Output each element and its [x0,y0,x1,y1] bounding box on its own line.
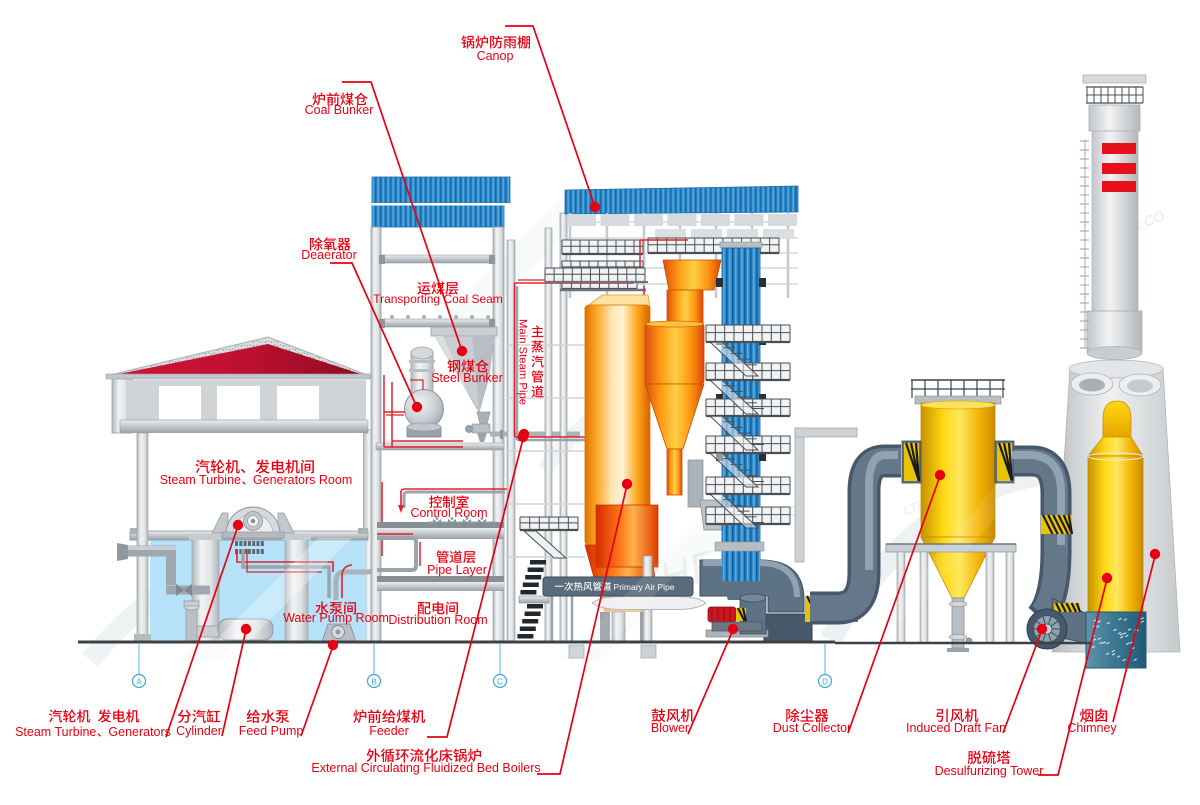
svg-text:Feeder: Feeder [369,724,409,738]
svg-text:Distribution Room: Distribution Room [388,613,487,627]
svg-text:Water Pump Room: Water Pump Room [283,611,389,625]
svg-text:Control Room: Control Room [410,506,487,520]
svg-text:D: D [822,678,828,687]
svg-text:Canop: Canop [477,49,514,63]
svg-text:Cylinder: Cylinder [176,724,222,738]
svg-text:External Circulating Fluidized: External Circulating Fluidized Bed Boile… [311,761,540,775]
svg-text:Feed Pump: Feed Pump [239,724,304,738]
svg-text:Deaerator: Deaerator [301,248,357,262]
svg-text:Induced Draft Fan: Induced Draft Fan [906,721,1006,735]
svg-text:Generators Room: Generators Room [253,473,352,487]
svg-text:Chimney: Chimney [1067,721,1117,735]
svg-text:Generators: Generators [108,725,171,739]
svg-text:Transporting Coal Seam: Transporting Coal Seam [373,292,503,306]
svg-text:Steel Bunker: Steel Bunker [431,371,503,385]
svg-text:Main Steam Pipe: Main Steam Pipe [517,319,529,405]
svg-text:B: B [371,678,376,687]
svg-text:Dust Collector: Dust Collector [773,721,852,735]
svg-text:Desulfurizing Tower: Desulfurizing Tower [935,764,1044,778]
svg-text:Pipe Layer: Pipe Layer [427,563,487,577]
svg-text:A: A [136,678,142,687]
svg-text:Coal Bunker: Coal Bunker [305,103,374,117]
svg-text:Blower: Blower [651,721,689,735]
svg-text:Steam Turbine: Steam Turbine [15,725,96,739]
svg-text:Steam Turbine: Steam Turbine [160,473,241,487]
svg-text:C: C [497,678,503,687]
